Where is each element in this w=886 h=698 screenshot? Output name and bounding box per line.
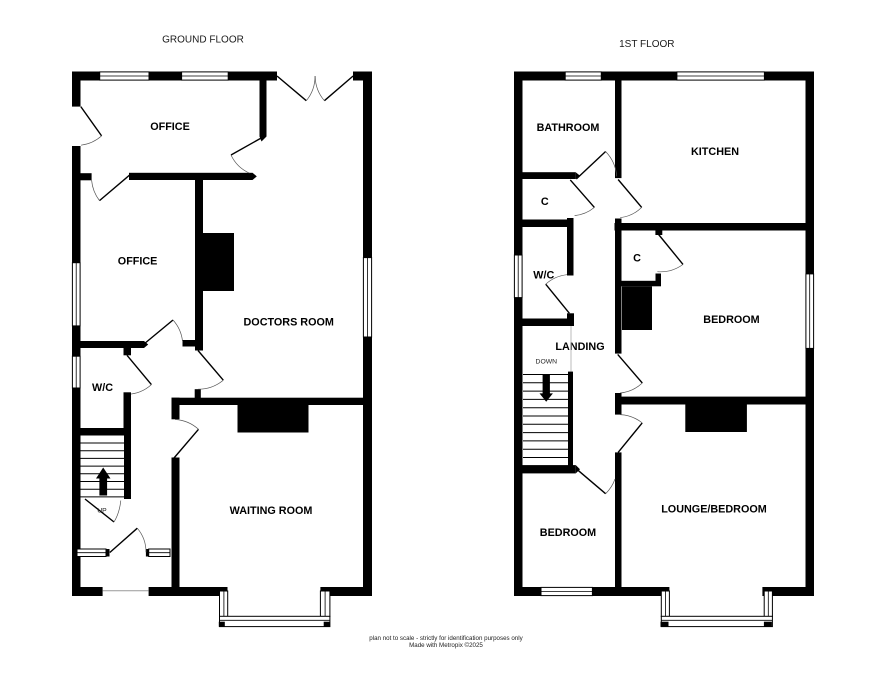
svg-text:UP: UP: [97, 508, 107, 515]
svg-text:BEDROOM: BEDROOM: [540, 527, 596, 539]
svg-text:LANDING: LANDING: [555, 341, 604, 353]
svg-text:GROUND FLOOR: GROUND FLOOR: [162, 35, 244, 46]
svg-text:DOCTORS ROOM: DOCTORS ROOM: [244, 316, 334, 328]
svg-text:C: C: [541, 196, 549, 208]
svg-text:BEDROOM: BEDROOM: [703, 314, 759, 326]
svg-text:plan not to scale - strictly f: plan not to scale - strictly for identif…: [369, 635, 523, 642]
svg-text:Made with Metropix ©2025: Made with Metropix ©2025: [409, 642, 483, 649]
svg-text:WAITING ROOM: WAITING ROOM: [230, 505, 313, 517]
svg-text:DOWN: DOWN: [536, 359, 558, 366]
svg-text:C: C: [633, 253, 641, 265]
svg-text:KITCHEN: KITCHEN: [691, 146, 739, 158]
svg-text:OFFICE: OFFICE: [150, 121, 190, 133]
svg-text:OFFICE: OFFICE: [118, 256, 158, 268]
svg-text:LOUNGE/BEDROOM: LOUNGE/BEDROOM: [661, 504, 767, 516]
svg-text:W/C: W/C: [92, 382, 113, 394]
svg-text:BATHROOM: BATHROOM: [537, 122, 600, 134]
svg-text:1ST FLOOR: 1ST FLOOR: [619, 39, 674, 50]
